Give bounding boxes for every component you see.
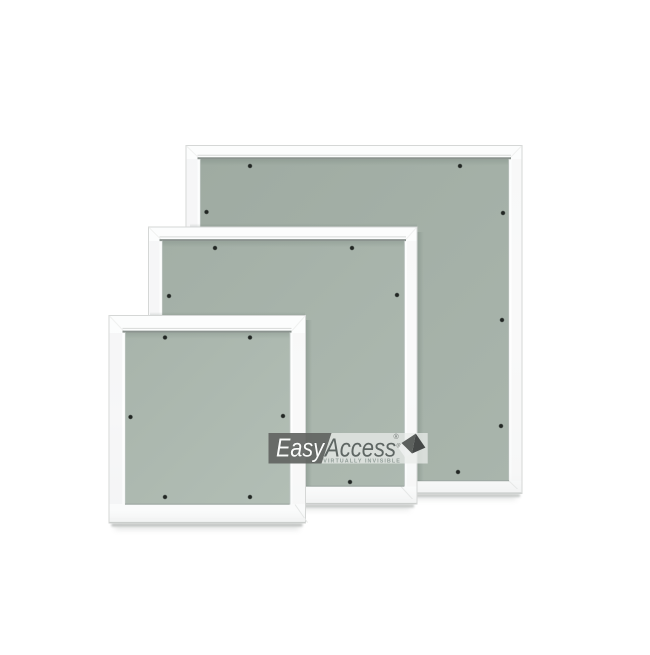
svg-text:®: ® — [394, 433, 400, 441]
svg-text:VIRTUALLY INVISIBLE: VIRTUALLY INVISIBLE — [323, 458, 400, 464]
svg-text:Easy: Easy — [276, 433, 326, 463]
